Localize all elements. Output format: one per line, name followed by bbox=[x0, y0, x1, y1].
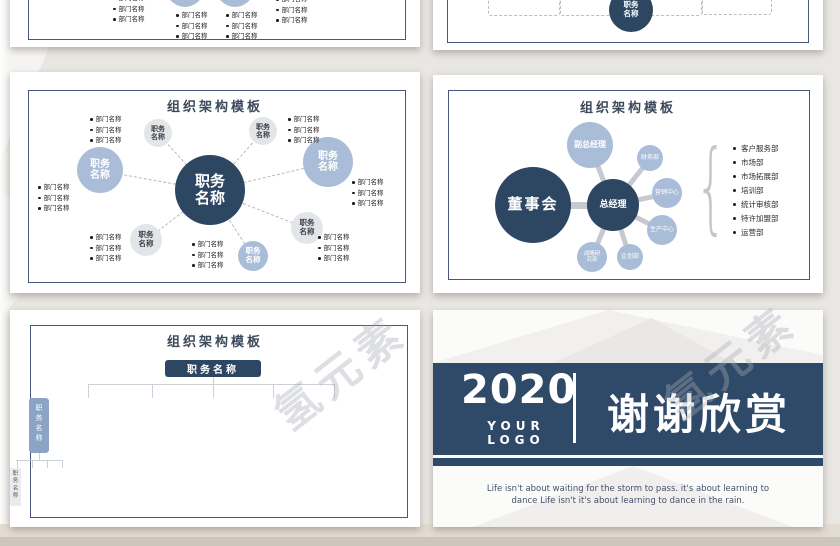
quote-line-2: dance Life isn't it's about learning to … bbox=[433, 496, 823, 508]
department-name: 部门名称 bbox=[324, 255, 350, 262]
bullet-dot bbox=[288, 129, 291, 132]
slide-thumbnail-thank-you[interactable]: 2020 YOUR LOGO 谢谢欣赏 Life isn't about wai… bbox=[433, 310, 823, 527]
department-bullets: 部门名称部门名称部门名称 bbox=[90, 234, 122, 266]
logo-text: YOUR LOGO bbox=[461, 419, 571, 447]
unit-label: 生产中心 bbox=[650, 227, 674, 234]
gm-circle: 总经理 bbox=[587, 179, 639, 231]
department-name: 部门名称 bbox=[294, 116, 320, 123]
position-label: 职务名称 bbox=[623, 1, 639, 18]
bullet-dot bbox=[226, 25, 229, 28]
bullet-dot bbox=[176, 25, 179, 28]
tree-connector bbox=[88, 384, 89, 398]
department-name: 部门名称 bbox=[44, 205, 70, 212]
position-label: 职务名称 bbox=[150, 125, 166, 141]
department-item: 运营部 bbox=[741, 229, 764, 237]
slide-thumbnail-org-flow[interactable]: 职务名称 bbox=[433, 0, 823, 50]
slide-title: 组织架构模板 bbox=[10, 331, 420, 350]
bullet-dot bbox=[733, 203, 736, 206]
bullet-dot bbox=[226, 35, 229, 38]
position-circle: 职务名称 bbox=[249, 117, 277, 145]
department-name: 部门名称 bbox=[198, 241, 224, 248]
tree-connector bbox=[273, 384, 274, 398]
position-circle: 职务名称 bbox=[609, 0, 653, 32]
bullet-dot bbox=[352, 202, 355, 205]
bullet-dot bbox=[90, 118, 93, 121]
template-preview-page: { "watermark": "氢元素", "common": { "title… bbox=[0, 0, 840, 546]
department-name: 部门名称 bbox=[96, 234, 122, 241]
center-position-circle: 职务名称 bbox=[175, 155, 245, 225]
department-bullets: 部门名称部门名称部门名称 bbox=[318, 234, 350, 266]
department-name: 部门名称 bbox=[119, 6, 145, 13]
bullet-dot bbox=[113, 18, 116, 21]
tree-connector bbox=[88, 384, 334, 385]
root-label: 职务名称 bbox=[187, 361, 239, 376]
department-list: 客户服务部 市场部 市场拓展部 培训部 统计审核部 特许加盟部 运营部 bbox=[733, 145, 779, 243]
department-name: 部门名称 bbox=[358, 190, 384, 197]
bullet-dot bbox=[176, 14, 179, 17]
bullet-dot bbox=[192, 243, 195, 246]
slide-title: 组织架构模板 bbox=[433, 97, 823, 116]
banner-underline bbox=[433, 458, 823, 466]
leaf-label: 职务名称 bbox=[13, 471, 19, 506]
slide-border bbox=[30, 325, 408, 518]
department-name: 部门名称 bbox=[282, 0, 308, 3]
bullet-dot bbox=[288, 139, 291, 142]
unit-circle: 企划部 bbox=[617, 244, 643, 270]
bullet-dot bbox=[113, 8, 116, 11]
position-circle: 职务名称 bbox=[130, 224, 162, 256]
slide-thumbnail-board-chart[interactable]: 组织架构模板 董事会 总经理 副总经理 财务部 营销中心 生产中心 企划部 战略… bbox=[433, 75, 823, 293]
department-item: 培训部 bbox=[741, 187, 764, 195]
department-item: 市场拓展部 bbox=[741, 173, 779, 181]
thank-you-banner: 2020 YOUR LOGO 谢谢欣赏 bbox=[433, 363, 823, 455]
tree-connector bbox=[213, 384, 214, 398]
tree-connector bbox=[16, 460, 62, 461]
department-item: 统计审核部 bbox=[741, 201, 779, 209]
slide-thumbnail-org-columns[interactable]: 部门名称 部门名称部门名称 部门名称 部门名称部门名称 部门名称 部门名称部门名… bbox=[10, 0, 420, 47]
department-name: 部门名称 bbox=[182, 23, 208, 30]
department-bullets: 部门名称 部门名称部门名称 bbox=[113, 0, 145, 27]
chairman-circle: 董事会 bbox=[495, 167, 571, 243]
department-name: 部门名称 bbox=[282, 17, 308, 24]
bullet-dot bbox=[318, 247, 321, 250]
department-name: 部门名称 bbox=[44, 195, 70, 202]
department-bullets: 部门名称 部门名称部门名称 bbox=[176, 12, 208, 44]
bullet-dot bbox=[90, 247, 93, 250]
quote-line-1: Life isn't about waiting for the storm t… bbox=[433, 484, 823, 496]
position-label: 职务名称 bbox=[255, 123, 271, 139]
tree-connector bbox=[213, 377, 214, 384]
department-name: 部门名称 bbox=[232, 12, 258, 19]
root-position-box: 职务名称 bbox=[165, 360, 261, 377]
department-name: 部门名称 bbox=[198, 252, 224, 259]
unit-label: 财务部 bbox=[641, 155, 659, 162]
placeholder-box bbox=[488, 0, 560, 16]
position-label: 职务名称 bbox=[138, 231, 155, 248]
department-item: 客户服务部 bbox=[741, 145, 779, 153]
unit-label: 营销中心 bbox=[655, 190, 679, 197]
position-label: 职务名称 bbox=[89, 159, 111, 182]
year-text: 2020 bbox=[461, 367, 571, 413]
department-name: 部门名称 bbox=[282, 7, 308, 14]
department-name: 部门名称 bbox=[324, 245, 350, 252]
slide-thumbnail-tree-chart[interactable]: 组织架构模板 职务名称 职务名称 职务名称 职务名称 职务名称 职务名称 职务名… bbox=[10, 310, 420, 527]
unit-circle: 财务部 bbox=[637, 145, 663, 171]
bullet-dot bbox=[318, 257, 321, 260]
position-label: 职务名称 bbox=[317, 151, 339, 174]
bullet-dot bbox=[288, 118, 291, 121]
position-circle: 职务名称 bbox=[238, 241, 268, 271]
department-bullets: 部门名称部门名称部门名称 bbox=[288, 116, 320, 148]
bullet-dot bbox=[226, 14, 229, 17]
tree-connector bbox=[152, 384, 153, 398]
bullet-dot bbox=[276, 19, 279, 22]
department-name: 部门名称 bbox=[44, 184, 70, 191]
bullet-dot bbox=[276, 0, 279, 1]
bullet-dot bbox=[733, 231, 736, 234]
bullet-dot bbox=[276, 9, 279, 12]
department-name: 部门名称 bbox=[232, 33, 258, 40]
bottom-strip bbox=[0, 537, 840, 546]
department-name: 部门名称 bbox=[358, 179, 384, 186]
bullet-dot bbox=[733, 161, 736, 164]
bullet-dot bbox=[318, 236, 321, 239]
department-name: 部门名称 bbox=[324, 234, 350, 241]
position-label: 职务名称 bbox=[245, 247, 261, 264]
tree-branch: 职务名称 职务名称 职务名称 职务名称 职务名称 bbox=[10, 398, 68, 508]
bullet-dot bbox=[733, 147, 736, 150]
bullet-dot bbox=[733, 217, 736, 220]
bullet-dot bbox=[38, 186, 41, 189]
department-name: 部门名称 bbox=[232, 23, 258, 30]
position-circle bbox=[216, 0, 254, 7]
department-name: 部门名称 bbox=[96, 127, 122, 134]
bullet-dot bbox=[38, 197, 41, 200]
tree-connector bbox=[17, 460, 18, 468]
unit-label: 副总经理 bbox=[574, 140, 606, 149]
tree-connector bbox=[39, 453, 40, 460]
slide-title: 组织架构模板 bbox=[10, 96, 420, 115]
department-name: 部门名称 bbox=[119, 16, 145, 23]
position-label: 职务名称 bbox=[193, 173, 227, 208]
department-name: 部门名称 bbox=[96, 137, 122, 144]
thank-you-title: 谢谢欣赏 bbox=[583, 381, 815, 442]
department-bullets: 部门名称部门名称部门名称 bbox=[38, 184, 70, 216]
gm-label: 总经理 bbox=[599, 200, 626, 210]
bullet-dot bbox=[38, 207, 41, 210]
bullet-dot bbox=[90, 129, 93, 132]
department-bullets: 部门名称部门名称部门名称 bbox=[90, 116, 122, 148]
chairman-label: 董事会 bbox=[507, 196, 558, 213]
curly-brace: { bbox=[695, 137, 727, 237]
position-circle: 职务名称 bbox=[144, 119, 172, 147]
department-bullets: 部门名称 部门名称部门名称 bbox=[276, 0, 308, 28]
department-name: 部门名称 bbox=[119, 0, 145, 2]
bullet-dot bbox=[733, 175, 736, 178]
department-name: 部门名称 bbox=[198, 262, 224, 269]
bullet-dot bbox=[192, 254, 195, 257]
bullet-dot bbox=[90, 139, 93, 142]
tree-connector bbox=[334, 384, 335, 398]
position-label: 职务名称 bbox=[299, 219, 316, 236]
placeholder-box bbox=[702, 0, 772, 15]
unit-circle: 生产中心 bbox=[647, 215, 677, 245]
bullet-dot bbox=[352, 181, 355, 184]
slide-thumbnail-hub-spoke[interactable]: 组织架构模板 职务名称 职务名称 职务名称 职务名称 职务名称 职务名称 职务名… bbox=[10, 72, 420, 293]
department-item: 特许加盟部 bbox=[741, 215, 779, 223]
unit-circle: 副总经理 bbox=[567, 122, 613, 168]
department-name: 部门名称 bbox=[96, 255, 122, 262]
tree-connector bbox=[32, 460, 33, 468]
branch-label: 职务名称 bbox=[35, 403, 43, 453]
tree-connector bbox=[47, 460, 48, 468]
bullet-dot bbox=[192, 264, 195, 267]
bullet-dot bbox=[90, 236, 93, 239]
department-name: 部门名称 bbox=[294, 137, 320, 144]
position-circle: 职务名称 bbox=[77, 147, 123, 193]
department-name: 部门名称 bbox=[294, 127, 320, 134]
department-name: 部门名称 bbox=[182, 12, 208, 19]
unit-label: 企划部 bbox=[621, 254, 639, 261]
unit-circle: 营销中心 bbox=[652, 178, 682, 208]
department-name: 部门名称 bbox=[96, 116, 122, 123]
bullet-dot bbox=[90, 257, 93, 260]
bullet-dot bbox=[733, 189, 736, 192]
banner-divider bbox=[573, 373, 576, 443]
branch-position-bar: 职务名称 bbox=[29, 398, 49, 453]
department-name: 部门名称 bbox=[182, 33, 208, 40]
department-bullets: 部门名称 部门名称部门名称 bbox=[226, 12, 258, 44]
leaf-position-box: 职务名称 bbox=[10, 468, 21, 506]
bullet-dot bbox=[176, 35, 179, 38]
department-bullets: 部门名称部门名称部门名称 bbox=[352, 179, 384, 211]
unit-circle: 战略研究部 bbox=[577, 242, 607, 272]
bullet-dot bbox=[352, 192, 355, 195]
department-name: 部门名称 bbox=[358, 200, 384, 207]
position-circle bbox=[166, 0, 204, 7]
department-name: 部门名称 bbox=[96, 245, 122, 252]
slide-border bbox=[28, 0, 406, 40]
tree-connector bbox=[62, 460, 63, 468]
department-item: 市场部 bbox=[741, 159, 764, 167]
department-bullets: 部门名称部门名称部门名称 bbox=[192, 241, 224, 273]
unit-label: 战略研究部 bbox=[582, 251, 602, 264]
